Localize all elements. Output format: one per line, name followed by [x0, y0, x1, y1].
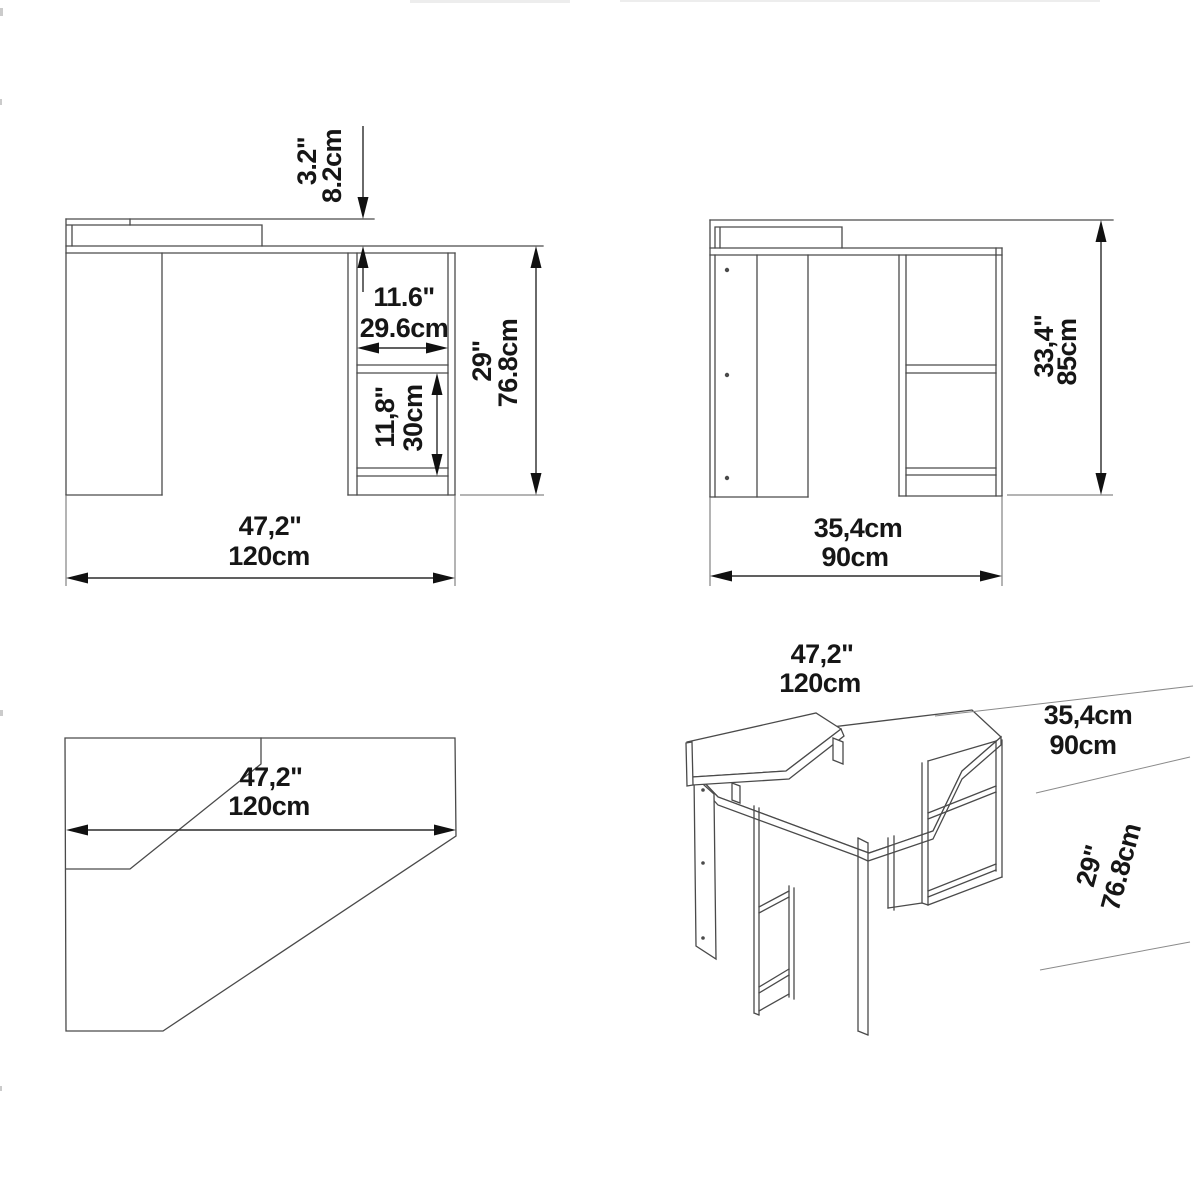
riser-support-right [833, 738, 843, 764]
plan-width-cm-label: 120cm [228, 791, 310, 821]
front-niche-width-cm-label: 29.6cm [360, 313, 449, 343]
edge-mark [0, 1086, 2, 1091]
arrowhead-up [531, 246, 542, 268]
front-dim-niche-height: 11,8" 30cm [370, 373, 443, 476]
arrowhead-right [980, 571, 1002, 582]
cam-hole [701, 861, 705, 865]
edge-mark [0, 99, 2, 105]
arrowhead-down [531, 473, 542, 495]
side-desk-outline [710, 220, 1113, 586]
arrowhead-left [66, 825, 88, 836]
smudge-mark [620, 0, 1100, 2]
front-width-inches-label: 47,2" [239, 511, 302, 541]
technical-drawing-page: 3.2" 8.2cm 11.6" 29.6cm 11,8" 30cm 29" 7… [0, 0, 1200, 1200]
front-dim-desk-height: 29" 76.8cm [467, 246, 542, 495]
arrowhead-up [1096, 220, 1107, 242]
cam-hole [701, 936, 705, 940]
iso-view: 47,2" 120cm 35,4cm 90cm 29" 76.8cm [686, 639, 1193, 1035]
plan-view: 47,2" 120cm [65, 738, 456, 1031]
iso-width-inches-label: 47,2" [791, 639, 854, 669]
corner-desk-dimension-drawing: 3.2" 8.2cm 11.6" 29.6cm 11,8" 30cm 29" 7… [0, 0, 1200, 1200]
scan-artifacts [0, 0, 1100, 1091]
arrowhead-down [358, 197, 369, 219]
front-dim-width: 47,2" 120cm [66, 511, 455, 584]
front-niche-height-cm-label: 30cm [398, 384, 428, 451]
cam-hole [725, 476, 729, 480]
edge-mark [0, 8, 3, 16]
plan-width-inches-label: 47,2" [240, 762, 303, 792]
side-total-height-cm-label: 85cm [1052, 318, 1082, 385]
side-dim-depth: 35,4cm 90cm [710, 513, 1002, 582]
arrowhead-down [432, 454, 443, 476]
edge-mark [0, 710, 3, 716]
front-riser-height-cm-label: 8.2cm [317, 129, 347, 203]
iso-depth-a-label: 35,4cm [1044, 700, 1133, 730]
front-desk-outline [66, 219, 544, 586]
arrowhead-left [66, 573, 88, 584]
arrowhead-left [710, 571, 732, 582]
arrowhead-up [358, 246, 369, 268]
plan-dim-width: 47,2" 120cm [66, 762, 456, 836]
cam-hole [725, 268, 729, 272]
cam-hole [701, 788, 705, 792]
arrowhead-up [432, 373, 443, 395]
front-niche-height-inches-label: 11,8" [370, 386, 400, 447]
side-depth-a-label: 35,4cm [814, 513, 903, 543]
front-view: 3.2" 8.2cm 11.6" 29.6cm 11,8" 30cm 29" 7… [66, 126, 544, 586]
front-width-cm-label: 120cm [228, 541, 310, 571]
arrowhead-down [1096, 473, 1107, 495]
iso-width-cm-label: 120cm [779, 668, 861, 698]
side-view: 33,4" 85cm 35,4cm 90cm [710, 220, 1113, 586]
cam-hole [725, 373, 729, 377]
arrowhead-right [426, 343, 448, 354]
smudge-mark [410, 0, 570, 3]
side-dim-total-height: 33,4" 85cm [1029, 220, 1107, 495]
front-dim-niche-width: 11.6" 29.6cm [357, 282, 448, 354]
iso-depth-b-label: 90cm [1049, 730, 1116, 760]
arrowhead-right [434, 825, 456, 836]
iso-left-side-panel [694, 776, 716, 959]
arrowhead-left [357, 343, 379, 354]
riser-support-left [732, 783, 740, 803]
side-depth-b-label: 90cm [821, 542, 888, 572]
front-desk-height-cm-label: 76.8cm [493, 319, 523, 408]
front-niche-width-inches-label: 11.6" [373, 282, 434, 312]
arrowhead-right [433, 573, 455, 584]
